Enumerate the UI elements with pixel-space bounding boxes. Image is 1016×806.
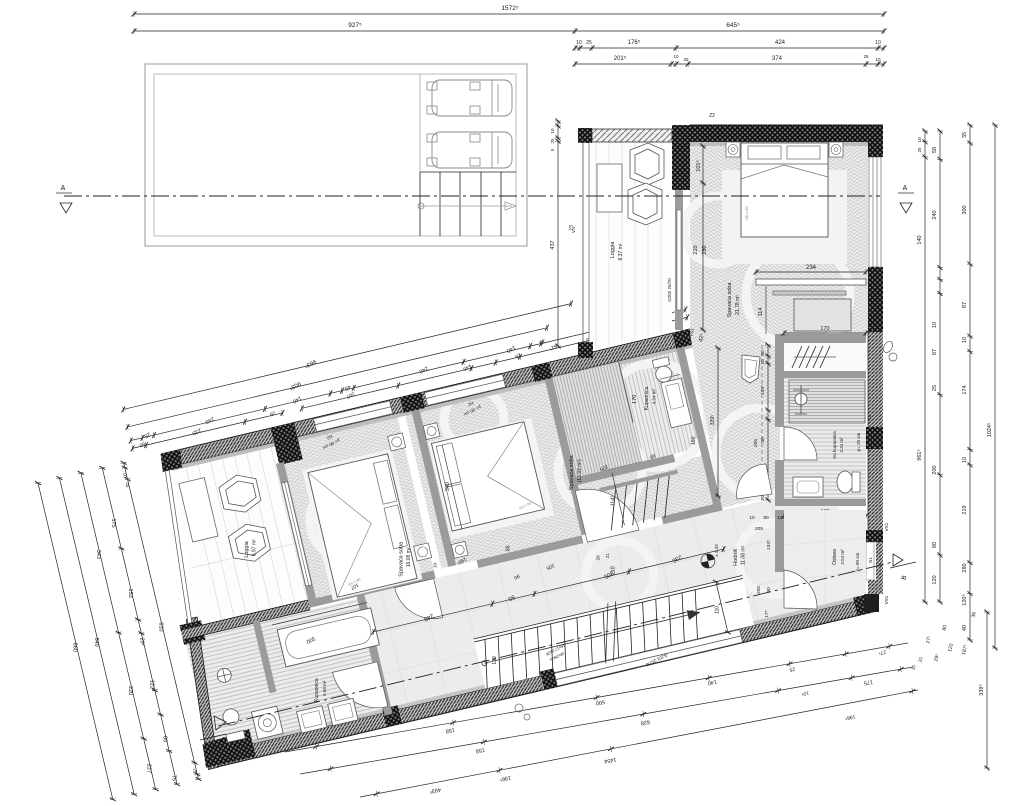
svg-text:170: 170 <box>632 395 638 404</box>
svg-text:374: 374 <box>772 56 783 62</box>
svg-text:N1: N1 <box>867 445 872 451</box>
svg-text:60: 60 <box>760 350 766 356</box>
svg-text:35: 35 <box>962 132 968 138</box>
svg-text:645⁵: 645⁵ <box>726 22 740 29</box>
svg-text:A: A <box>61 185 66 192</box>
svg-text:205: 205 <box>755 526 763 532</box>
svg-text:10: 10 <box>550 128 555 134</box>
svg-text:200: 200 <box>932 465 938 474</box>
svg-text:10: 10 <box>875 57 881 62</box>
svg-text:101⁵: 101⁵ <box>695 160 702 171</box>
svg-text:205: 205 <box>756 586 762 594</box>
svg-text:133⁵: 133⁵ <box>766 540 772 550</box>
svg-text:110: 110 <box>714 606 720 614</box>
svg-text:201⁵: 201⁵ <box>614 55 627 62</box>
svg-text:29⁵: 29⁵ <box>138 638 145 646</box>
svg-text:174: 174 <box>962 385 968 394</box>
svg-text:87: 87 <box>932 349 938 355</box>
svg-text:227: 227 <box>146 764 152 773</box>
svg-text:86: 86 <box>506 545 512 551</box>
svg-text:(13.93 m²): (13.93 m²) <box>577 459 583 482</box>
svg-text:10: 10 <box>433 563 438 569</box>
svg-text:Spavaća soba: Spavaća soba <box>569 454 575 490</box>
svg-text:205: 205 <box>753 439 759 447</box>
svg-text:80: 80 <box>161 736 167 742</box>
svg-text:A: A <box>903 185 908 192</box>
svg-text:10: 10 <box>932 322 938 328</box>
svg-text:± 3.33: ± 3.33 <box>714 544 719 557</box>
svg-text:25: 25 <box>586 40 592 46</box>
svg-text:p= 80 cm: p= 80 cm <box>855 552 860 571</box>
svg-text:21,78 m²: 21,78 m² <box>735 295 741 315</box>
svg-text:300: 300 <box>962 205 968 214</box>
svg-text:90: 90 <box>763 515 769 521</box>
svg-text:280: 280 <box>962 563 968 572</box>
svg-text:10: 10 <box>673 54 679 59</box>
svg-text:219: 219 <box>962 505 968 514</box>
svg-text:339⁵: 339⁵ <box>710 415 716 425</box>
svg-text:437: 437 <box>550 240 556 249</box>
svg-text:10: 10 <box>760 359 766 365</box>
svg-text:10: 10 <box>122 473 127 479</box>
svg-text:Spavaća soba: Spavaća soba <box>727 282 733 318</box>
svg-text:176⁵: 176⁵ <box>628 39 641 46</box>
svg-text:153: 153 <box>127 589 133 598</box>
svg-text:VS1: VS1 <box>884 522 889 531</box>
svg-text:10: 10 <box>962 457 968 463</box>
svg-text:640: 640 <box>93 638 99 647</box>
svg-text:N1: N1 <box>868 557 873 563</box>
svg-text:10: 10 <box>749 515 755 521</box>
svg-text:1572⁵: 1572⁵ <box>501 5 518 12</box>
svg-text:Loggia: Loggia <box>610 241 616 258</box>
svg-text:80: 80 <box>932 542 938 548</box>
svg-text:20: 20 <box>595 555 600 561</box>
svg-text:660: 660 <box>72 643 78 652</box>
svg-text:Loggia: Loggia <box>244 540 250 557</box>
svg-text:80: 80 <box>760 437 766 443</box>
svg-text:114⁵: 114⁵ <box>610 495 617 506</box>
svg-text:175: 175 <box>110 518 116 527</box>
svg-text:104⁵: 104⁵ <box>760 385 766 395</box>
svg-text:122⁵: 122⁵ <box>149 680 156 691</box>
svg-text:21: 21 <box>605 553 610 559</box>
svg-text:VS1: VS1 <box>884 595 889 604</box>
svg-text:11.08 m²: 11.08 m² <box>741 545 747 565</box>
svg-text:961⁵: 961⁵ <box>916 449 923 460</box>
svg-text:8.37 m²: 8.37 m² <box>618 243 624 260</box>
svg-text:140: 140 <box>917 235 923 244</box>
svg-text:4.34 m²: 4.34 m² <box>839 437 844 453</box>
svg-text:340: 340 <box>445 482 451 491</box>
svg-text:343: 343 <box>95 550 101 559</box>
svg-text:240: 240 <box>932 210 938 219</box>
svg-text:160: 160 <box>691 436 697 445</box>
svg-text:25: 25 <box>932 385 938 391</box>
svg-text:16.08 m²: 16.08 m² <box>406 547 412 567</box>
svg-text:87: 87 <box>962 302 968 308</box>
svg-text:234: 234 <box>806 265 817 271</box>
svg-text:610: 610 <box>157 622 163 631</box>
svg-text:Nu kupaonica: Nu kupaonica <box>832 431 837 459</box>
svg-text:Kupaonica: Kupaonica <box>314 678 320 702</box>
svg-text:114: 114 <box>758 308 764 317</box>
svg-text:280: 280 <box>702 245 708 254</box>
svg-text:139: 139 <box>492 656 498 665</box>
svg-text:25: 25 <box>863 54 869 59</box>
svg-text:339⁵: 339⁵ <box>978 684 985 695</box>
svg-text:10: 10 <box>576 40 582 46</box>
svg-text:Kupaonica: Kupaonica <box>644 386 650 410</box>
svg-text:Z2: Z2 <box>709 113 715 119</box>
svg-text:10: 10 <box>917 137 922 143</box>
svg-text:25: 25 <box>917 147 922 153</box>
svg-text:220: 220 <box>693 245 699 254</box>
svg-text:25: 25 <box>550 138 555 144</box>
svg-text:p= 20 cm: p= 20 cm <box>856 432 861 451</box>
svg-text:120⁵: 120⁵ <box>961 594 968 605</box>
svg-text:Ostava: Ostava <box>832 549 838 565</box>
svg-text:424: 424 <box>775 40 786 46</box>
svg-text:58: 58 <box>932 147 938 153</box>
svg-text:40: 40 <box>962 625 968 631</box>
svg-text:3.53 m²: 3.53 m² <box>840 549 845 565</box>
svg-text:180 x 200: 180 x 200 <box>745 206 749 220</box>
svg-text:120: 120 <box>932 575 938 584</box>
svg-text:220: 220 <box>127 686 133 695</box>
svg-text:10: 10 <box>777 515 783 521</box>
svg-text:110: 110 <box>611 566 617 575</box>
svg-text:N2: N2 <box>867 415 872 421</box>
svg-text:75: 75 <box>170 775 176 781</box>
svg-text:25: 25 <box>192 769 197 775</box>
svg-text:6.68 m²: 6.68 m² <box>322 680 327 696</box>
svg-text:927⁵: 927⁵ <box>348 22 362 29</box>
svg-text:10: 10 <box>962 337 968 343</box>
svg-text:25: 25 <box>683 57 689 62</box>
svg-text:4.54 m²: 4.54 m² <box>652 388 657 404</box>
svg-text:25: 25 <box>125 482 130 488</box>
svg-text:6.97 m²: 6.97 m² <box>252 539 258 556</box>
svg-text:17⁵: 17⁵ <box>764 610 770 617</box>
svg-text:Hodnik: Hodnik <box>733 548 739 565</box>
svg-text:10: 10 <box>875 40 881 46</box>
svg-text:G202 25/70: G202 25/70 <box>667 278 672 302</box>
svg-text:Spavaća soba: Spavaća soba <box>398 541 404 577</box>
svg-text:1024⁵: 1024⁵ <box>986 423 993 438</box>
svg-text:170: 170 <box>820 326 829 332</box>
